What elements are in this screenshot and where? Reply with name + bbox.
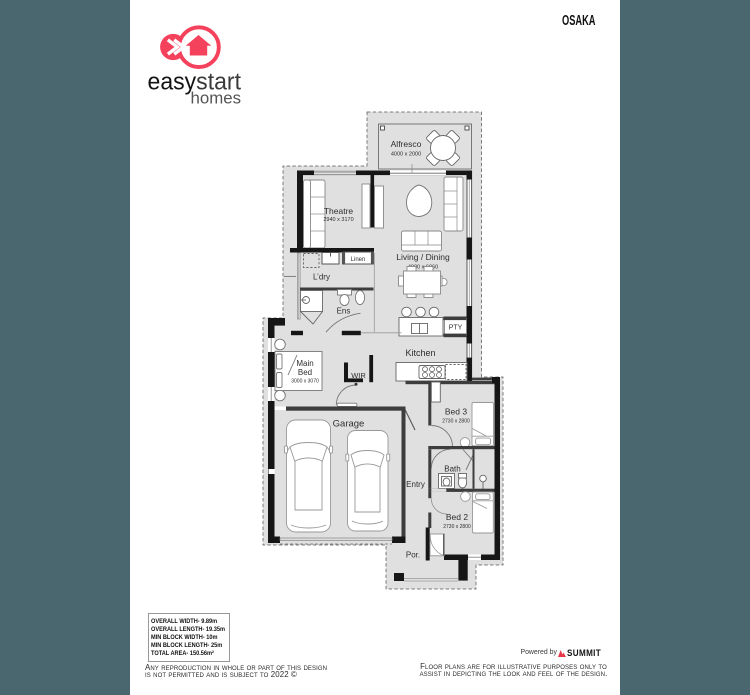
- svg-text:Bed 3: Bed 3: [445, 407, 467, 417]
- svg-text:2730 x 2800: 2730 x 2800: [443, 524, 471, 530]
- svg-text:PTY: PTY: [449, 325, 463, 332]
- svg-text:Alfresco: Alfresco: [391, 139, 422, 149]
- svg-text:homes: homes: [191, 89, 242, 108]
- svg-text:Linen: Linen: [351, 257, 366, 263]
- svg-text:Main: Main: [296, 359, 313, 368]
- svg-text:Bed: Bed: [298, 368, 312, 377]
- svg-text:Kitchen: Kitchen: [405, 348, 435, 358]
- svg-text:WIR: WIR: [351, 371, 366, 380]
- svg-text:Por.: Por.: [406, 551, 420, 560]
- svg-text:Bed 2: Bed 2: [446, 512, 468, 522]
- svg-text:Entry: Entry: [406, 480, 425, 489]
- svg-text:Bath: Bath: [444, 465, 460, 474]
- svg-text:2940 x 3170: 2940 x 3170: [323, 217, 353, 223]
- svg-text:L’dry: L’dry: [313, 273, 330, 282]
- svg-text:Ens: Ens: [337, 307, 351, 316]
- svg-text:2730 x 2800: 2730 x 2800: [442, 419, 470, 425]
- svg-text:Theatre: Theatre: [324, 206, 354, 216]
- svg-text:4000 x 2000: 4000 x 2000: [391, 152, 421, 158]
- svg-text:Garage: Garage: [333, 419, 365, 430]
- svg-text:Living / Dining: Living / Dining: [396, 252, 450, 262]
- svg-text:3000 x 3070: 3000 x 3070: [291, 379, 319, 385]
